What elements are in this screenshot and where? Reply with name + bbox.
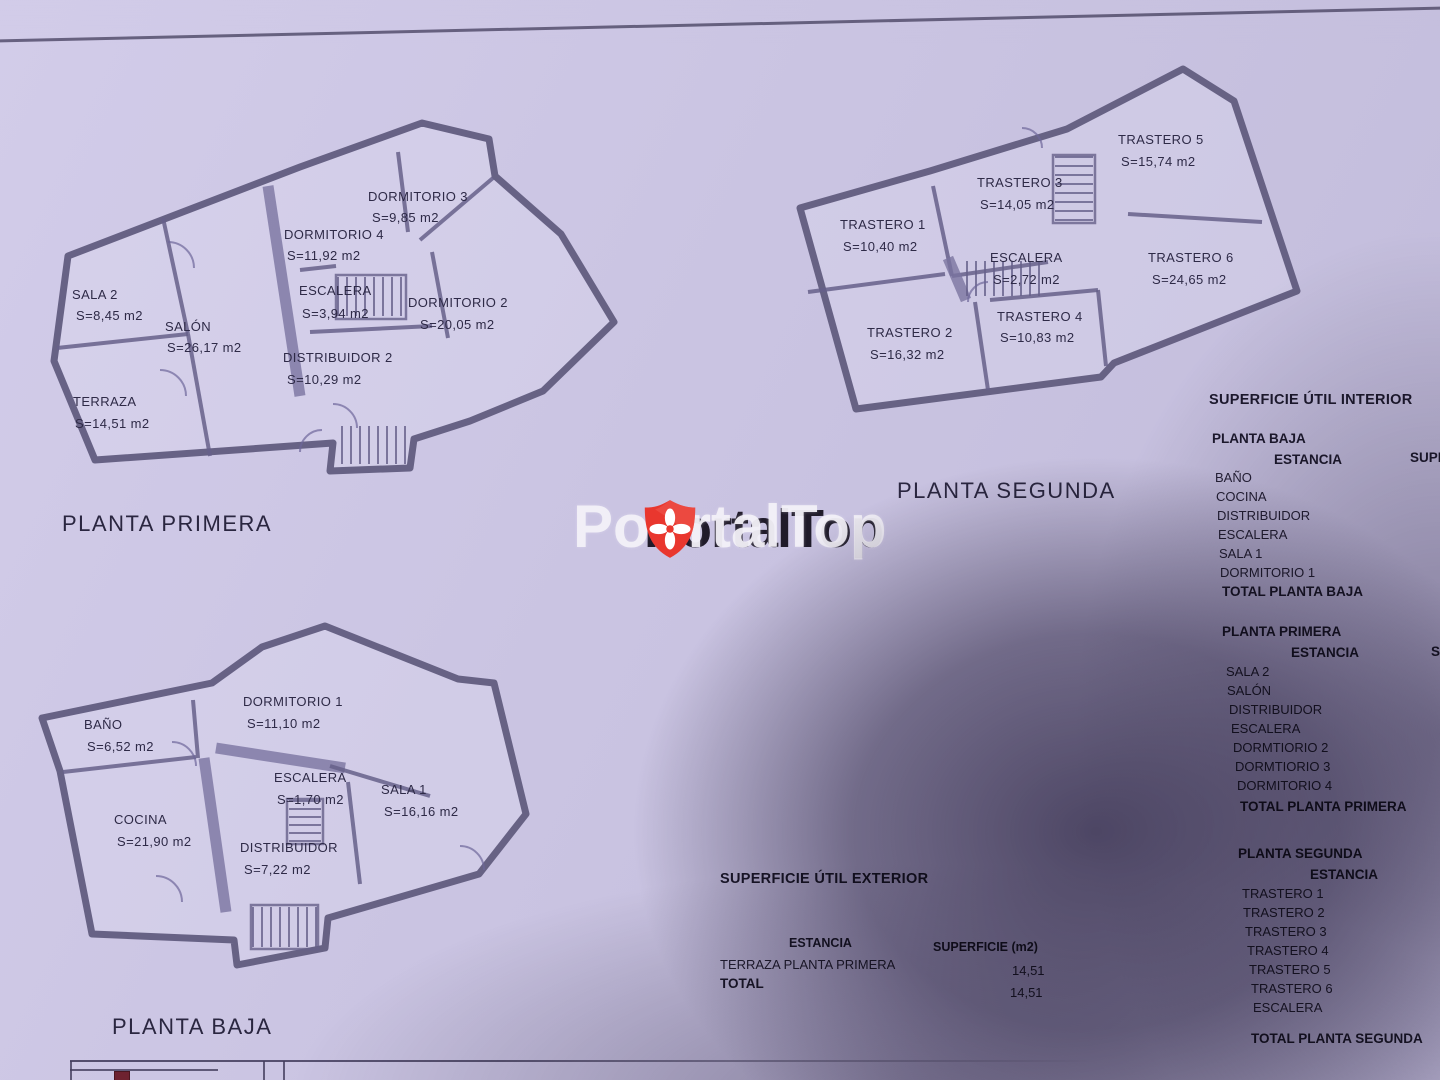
table-row: TRASTERO 4 bbox=[1247, 943, 1329, 958]
table-row: DORMTIORIO 2 bbox=[1233, 740, 1328, 755]
table-row: TRASTERO 1 bbox=[1242, 886, 1324, 901]
table-row: DORMITORIO 4 bbox=[1237, 778, 1332, 793]
room-name-label: SALÓN bbox=[165, 319, 211, 334]
room-name-label: DORMITORIO 3 bbox=[368, 189, 468, 204]
room-area-label: S=24,65 m2 bbox=[1152, 272, 1226, 287]
room-name-label: TRASTERO 1 bbox=[840, 217, 926, 232]
room-area-label: S=11,10 m2 bbox=[247, 716, 321, 731]
room-name-label: ESCALERA bbox=[274, 770, 347, 785]
title-block-tick bbox=[263, 1061, 265, 1080]
title-block-tick bbox=[283, 1061, 285, 1080]
room-name-label: TRASTERO 6 bbox=[1148, 250, 1234, 265]
plan-title-baja: PLANTA BAJA bbox=[112, 1014, 272, 1040]
room-name-label: ESCALERA bbox=[299, 283, 372, 298]
room-area-label: S=21,90 m2 bbox=[117, 834, 191, 849]
room-area-label: S=10,40 m2 bbox=[843, 239, 917, 254]
section-total-row: TOTAL PLANTA PRIMERA bbox=[1240, 799, 1407, 814]
column-header-superficie: SUPERFICIE (m2) bbox=[1431, 644, 1440, 659]
title-block-line bbox=[70, 1060, 1150, 1062]
room-area-label: S=16,32 m2 bbox=[870, 347, 944, 362]
interior-table-title: SUPERFICIE ÚTIL INTERIOR bbox=[1209, 392, 1413, 408]
room-name-label: COCINA bbox=[114, 812, 167, 827]
room-name-label: TRASTERO 4 bbox=[997, 309, 1083, 324]
table-row: TERRAZA PLANTA PRIMERA bbox=[720, 957, 895, 972]
room-area-label: S=9,85 m2 bbox=[372, 210, 439, 225]
room-area-label: S=7,22 m2 bbox=[244, 862, 311, 877]
table-row: ESCALERA bbox=[1231, 721, 1300, 736]
table-row: ESCALERA bbox=[1218, 527, 1287, 542]
room-area-label: S=26,17 m2 bbox=[167, 340, 241, 355]
title-block-tick bbox=[70, 1061, 72, 1080]
floor-plan-planta-segunda: TRASTERO 1 S=10,40 m2 TRASTERO 3 S=14,05… bbox=[780, 50, 1360, 430]
room-area-label: S=1,70 m2 bbox=[277, 792, 344, 807]
table-row: SALA 2 bbox=[1226, 664, 1269, 679]
watermark-brand-text: Po rtalTop bbox=[573, 492, 887, 561]
room-area-label: S=15,74 m2 bbox=[1121, 154, 1195, 169]
floor-plan-planta-baja: BAÑO S=6,52 m2 DORMITORIO 1 S=11,10 m2 C… bbox=[30, 615, 550, 995]
sheet-border-line bbox=[0, 7, 1440, 42]
section-header-planta-primera: PLANTA PRIMERA bbox=[1222, 624, 1341, 639]
room-area-label: S=8,45 m2 bbox=[76, 308, 143, 323]
room-area-label: S=14,51 m2 bbox=[75, 416, 149, 431]
section-total-row: TOTAL PLANTA SEGUNDA bbox=[1251, 1031, 1423, 1046]
exterior-table-title: SUPERFICIE ÚTIL EXTERIOR bbox=[720, 871, 928, 887]
room-area-label: S=6,52 m2 bbox=[87, 739, 154, 754]
room-area-label: S=16,16 m2 bbox=[384, 804, 458, 819]
watermark-brand-left: Po bbox=[573, 492, 650, 561]
title-block-stamp bbox=[114, 1071, 130, 1080]
table-row: TRASTERO 5 bbox=[1249, 962, 1331, 977]
column-header-superficie: SUPERFICIE (m2) bbox=[1410, 450, 1440, 465]
room-name-label: DORMITORIO 2 bbox=[408, 295, 508, 310]
total-label: TOTAL bbox=[720, 976, 764, 991]
room-area-label: S=10,83 m2 bbox=[1000, 330, 1074, 345]
table-row: TRASTERO 2 bbox=[1243, 905, 1325, 920]
table-value: 14,51 bbox=[1012, 963, 1045, 978]
table-row: DORMTIORIO 3 bbox=[1235, 759, 1330, 774]
title-block-line bbox=[70, 1069, 218, 1071]
table-row: ESCALERA bbox=[1253, 1000, 1322, 1015]
room-name-label: TRASTERO 5 bbox=[1118, 132, 1204, 147]
room-name-label: BAÑO bbox=[84, 717, 122, 732]
room-name-label: TRASTERO 3 bbox=[977, 175, 1063, 190]
column-header-estancia: ESTANCIA bbox=[1291, 645, 1359, 660]
table-row: SALÓN bbox=[1227, 683, 1271, 698]
room-name-label: DORMITORIO 4 bbox=[284, 227, 384, 242]
table-row: BAÑO bbox=[1215, 470, 1252, 485]
column-header-superficie: SUPERFICIE (m2) bbox=[933, 940, 1038, 954]
room-name-label: DISTRIBUIDOR 2 bbox=[283, 350, 393, 365]
column-header-estancia: ESTANCIA bbox=[789, 936, 852, 950]
plan-title-primera: PLANTA PRIMERA bbox=[62, 511, 272, 537]
plan-title-segunda: PLANTA SEGUNDA bbox=[897, 478, 1116, 504]
floor-plan-sheet: SALA 2 S=8,45 m2 SALÓN S=26,17 m2 TERRAZ… bbox=[0, 0, 1440, 1080]
room-area-label: S=3,94 m2 bbox=[302, 306, 369, 321]
room-name-label: TERRAZA bbox=[73, 394, 136, 409]
room-name-label: TRASTERO 2 bbox=[867, 325, 953, 340]
column-header-estancia: ESTANCIA bbox=[1310, 867, 1378, 882]
room-name-label: DISTRIBUIDOR bbox=[240, 840, 338, 855]
total-value: 14,51 bbox=[1010, 985, 1043, 1000]
portaltop-shield-flower-icon bbox=[642, 497, 698, 561]
table-row: DORMITORIO 1 bbox=[1220, 565, 1315, 580]
section-header-planta-segunda: PLANTA SEGUNDA bbox=[1238, 846, 1363, 861]
floor-plan-planta-primera: SALA 2 S=8,45 m2 SALÓN S=26,17 m2 TERRAZ… bbox=[30, 110, 630, 490]
watermark-brand-right: rtalTop bbox=[688, 492, 887, 561]
table-row: COCINA bbox=[1216, 489, 1267, 504]
room-area-label: S=11,92 m2 bbox=[287, 248, 361, 263]
room-area-label: S=2,72 m2 bbox=[993, 272, 1060, 287]
room-name-label: ESCALERA bbox=[990, 250, 1063, 265]
room-area-label: S=10,29 m2 bbox=[287, 372, 361, 387]
room-area-label: S=14,05 m2 bbox=[980, 197, 1054, 212]
table-row: TRASTERO 3 bbox=[1245, 924, 1327, 939]
table-row: DISTRIBUIDOR bbox=[1229, 702, 1322, 717]
table-row: DISTRIBUIDOR bbox=[1217, 508, 1310, 523]
room-area-label: S=20,05 m2 bbox=[420, 317, 494, 332]
table-row: TRASTERO 6 bbox=[1251, 981, 1333, 996]
table-row: SALA 1 bbox=[1219, 546, 1262, 561]
room-name-label: DORMITORIO 1 bbox=[243, 694, 343, 709]
section-total-row: TOTAL PLANTA BAJA bbox=[1222, 584, 1363, 599]
section-header-planta-baja: PLANTA BAJA bbox=[1212, 431, 1306, 446]
room-name-label: SALA 1 bbox=[381, 782, 427, 797]
room-name-label: SALA 2 bbox=[72, 287, 118, 302]
column-header-estancia: ESTANCIA bbox=[1274, 452, 1342, 467]
